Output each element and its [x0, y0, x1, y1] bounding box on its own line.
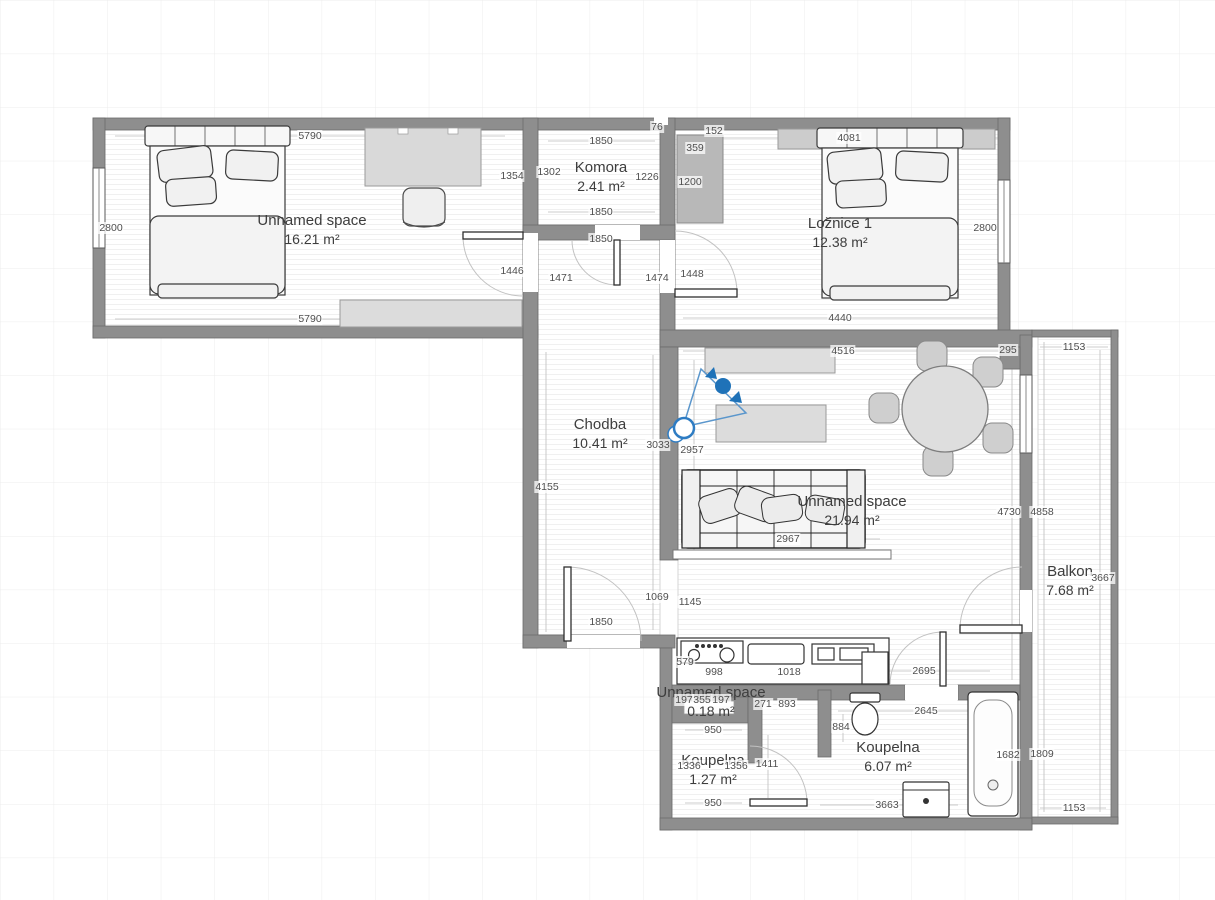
dresser[interactable] [340, 300, 522, 327]
duct-slot [684, 701, 734, 714]
opening-bedroom-door [523, 233, 538, 292]
camera-icon[interactable] [674, 418, 694, 438]
wall-balkon-right[interactable] [1111, 330, 1118, 824]
wall-balkon-bottom[interactable] [1032, 817, 1118, 824]
sofa-shelf[interactable] [673, 550, 891, 559]
desk[interactable] [365, 128, 481, 186]
double-bed-2[interactable] [817, 128, 963, 300]
wall-living-left[interactable] [660, 347, 678, 560]
opening-chodba-door [567, 635, 640, 648]
wall-bedroom-bottom[interactable] [93, 326, 538, 338]
floorplan-drawing [0, 0, 1215, 900]
door-leaf-komora[interactable] [614, 240, 620, 285]
floorplan-canvas[interactable]: Unnamed space16.21 m²Komora2.41 m²Ložnic… [0, 0, 1215, 900]
coffee-table[interactable] [716, 405, 826, 442]
wall-notch [654, 116, 668, 125]
dining-chair[interactable] [983, 423, 1013, 453]
dining-table[interactable] [902, 366, 988, 452]
kitchen-counter[interactable] [677, 638, 889, 684]
opening-komora-door [595, 225, 640, 240]
sink[interactable] [748, 644, 804, 664]
window-loznice-right[interactable] [998, 180, 1010, 263]
floor-balkon[interactable] [1038, 337, 1112, 818]
washing-machine[interactable] [903, 782, 949, 817]
wall-living-top[interactable] [660, 330, 1032, 347]
wall-chodba-left[interactable] [523, 118, 538, 648]
wall-toilet-nook[interactable] [818, 690, 831, 757]
door-leaf-loznice[interactable] [675, 289, 737, 297]
bathtub[interactable] [968, 692, 1018, 816]
wall-shelf-left[interactable] [778, 129, 821, 149]
opening-bath-door [905, 685, 958, 700]
door-leaf-chodba[interactable] [564, 567, 571, 641]
double-bed-1[interactable] [145, 126, 290, 298]
door-leaf-koupelna-small[interactable] [750, 799, 807, 806]
wardrobe[interactable] [677, 135, 723, 223]
dining-chair[interactable] [869, 393, 899, 423]
window-bedroom-left[interactable] [93, 168, 105, 248]
door-leaf-balkon[interactable] [960, 625, 1022, 633]
wall-koupelna-divider[interactable] [748, 697, 762, 763]
stove[interactable] [681, 641, 743, 663]
door-leaf-bedroom[interactable] [463, 232, 523, 239]
opening-loznice-door [660, 240, 675, 293]
window-living-right[interactable] [1020, 375, 1032, 453]
sideboard[interactable] [705, 348, 835, 373]
floor-chodba[interactable] [538, 240, 660, 635]
floor-komora[interactable] [538, 130, 660, 225]
door-leaf-bath[interactable] [940, 632, 946, 686]
wall-shelf-right[interactable] [962, 129, 995, 149]
sofa[interactable] [682, 470, 865, 548]
desk-chair[interactable] [403, 188, 445, 227]
toilet[interactable] [850, 693, 880, 735]
wall-balkon-top[interactable] [1032, 330, 1118, 337]
camera-dot-icon[interactable] [715, 378, 731, 394]
wall-bottomleft[interactable] [660, 648, 672, 830]
kitchen-column[interactable] [862, 652, 888, 684]
wall-bottom[interactable] [660, 818, 1032, 830]
